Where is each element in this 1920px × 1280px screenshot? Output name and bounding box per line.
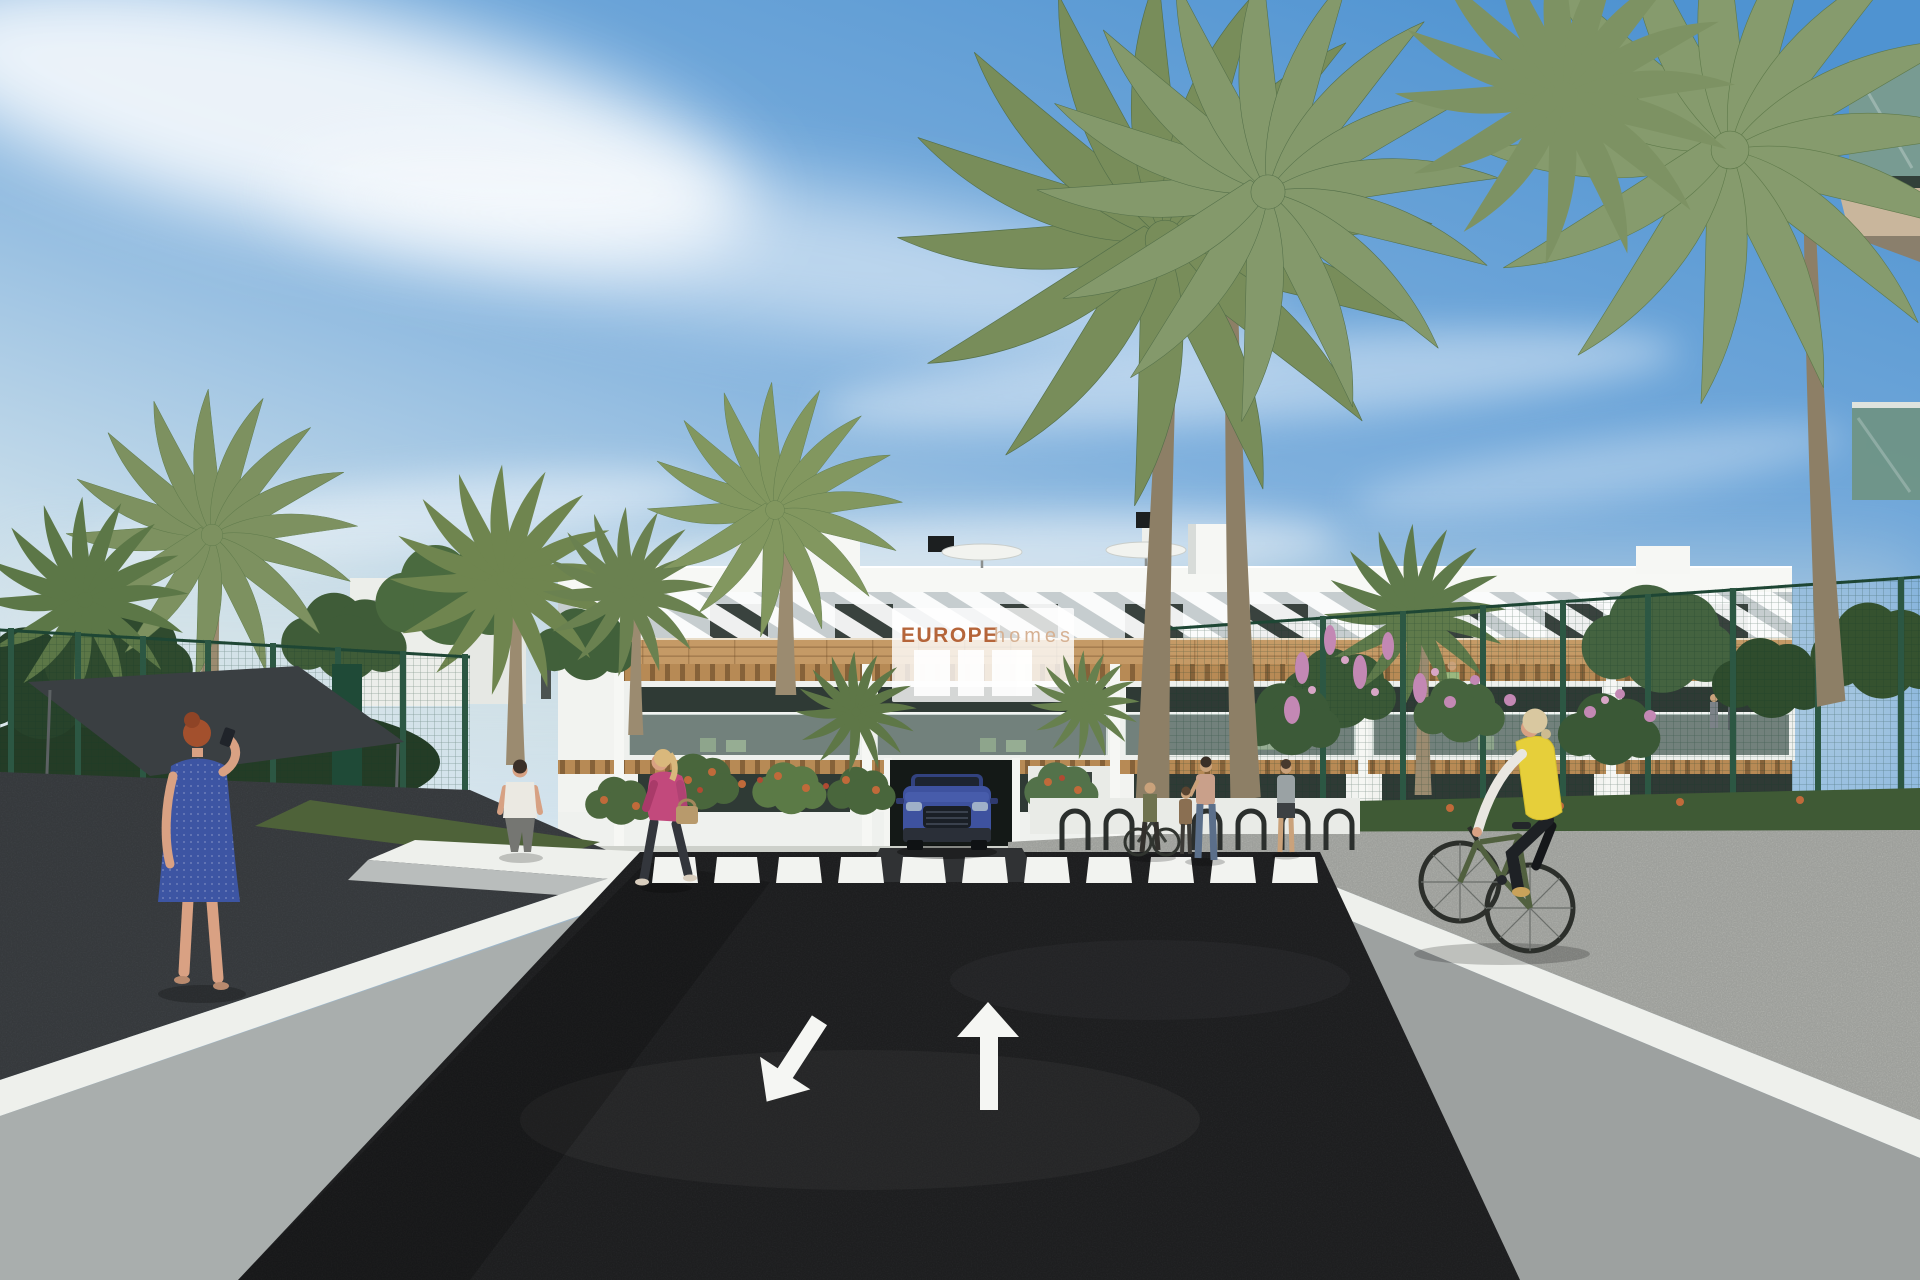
developer-sign: EUROPE homes: [892, 608, 1074, 702]
sign-brand-text: EUROPE: [901, 624, 999, 647]
sign-suffix-text: homes: [994, 625, 1074, 647]
sign-logo-blocks: [914, 650, 1032, 696]
suv-car: [896, 774, 998, 859]
render-image: EUROPE homes: [0, 0, 1920, 1280]
